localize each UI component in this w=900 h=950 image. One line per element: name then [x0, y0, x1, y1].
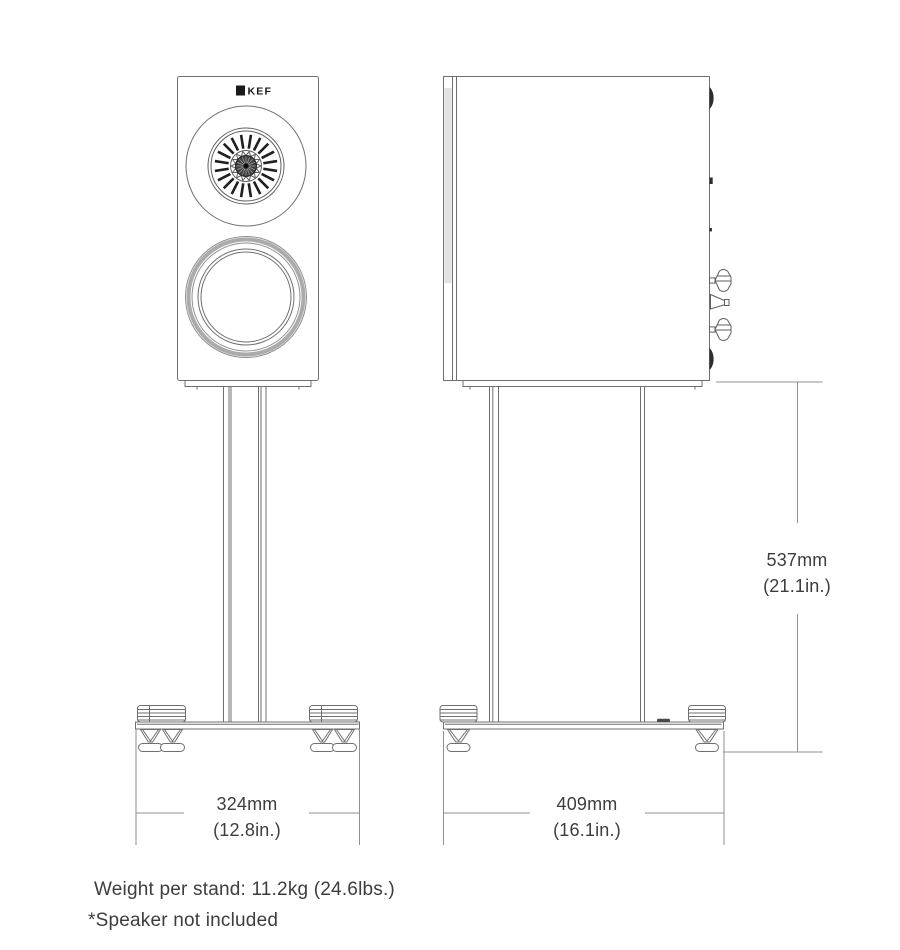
side-view	[440, 77, 731, 752]
width-dimension-label: 324mm (12.8in.)	[182, 791, 312, 843]
uniq-center-dot	[244, 164, 248, 168]
front-stand-columns	[224, 387, 267, 723]
rear-tick	[710, 228, 712, 231]
height-imperial: (21.1in.)	[732, 573, 862, 599]
side-cabinet	[444, 77, 710, 381]
height-metric: 537mm	[732, 547, 862, 573]
link-terminal	[711, 295, 730, 310]
disclaimer-note: *Speaker not included	[88, 910, 278, 932]
binding-post-upper	[710, 270, 732, 292]
front-base-plate	[136, 722, 360, 729]
depth-dimension-label: 409mm (16.1in.)	[522, 791, 652, 843]
side-rear-details	[710, 87, 732, 370]
drawing-canvas: KEF	[0, 0, 900, 950]
side-baffle-shading	[445, 88, 452, 283]
front-plinth	[185, 381, 311, 390]
rear-notch	[710, 178, 713, 185]
kef-logo-text: KEF	[248, 86, 273, 98]
front-view: KEF	[136, 77, 360, 752]
depth-imperial: (16.1in.)	[522, 817, 652, 843]
weight-note: Weight per stand: 11.2kg (24.6lbs.)	[94, 879, 395, 901]
width-imperial: (12.8in.)	[182, 817, 312, 843]
rear-top-bump	[710, 87, 714, 109]
dimension-drawing: KEF	[0, 0, 900, 950]
rear-bottom-bump	[710, 348, 714, 370]
side-stand-columns	[490, 387, 645, 723]
side-base-plate	[444, 719, 724, 729]
dimension-lines	[136, 382, 823, 845]
plate-detail	[657, 719, 670, 722]
width-metric: 324mm	[182, 791, 312, 817]
height-dimension-label: 537mm (21.1in.)	[732, 547, 862, 599]
depth-metric: 409mm	[522, 791, 652, 817]
kef-logo-badge-icon	[236, 86, 245, 96]
binding-post-lower	[710, 319, 732, 341]
